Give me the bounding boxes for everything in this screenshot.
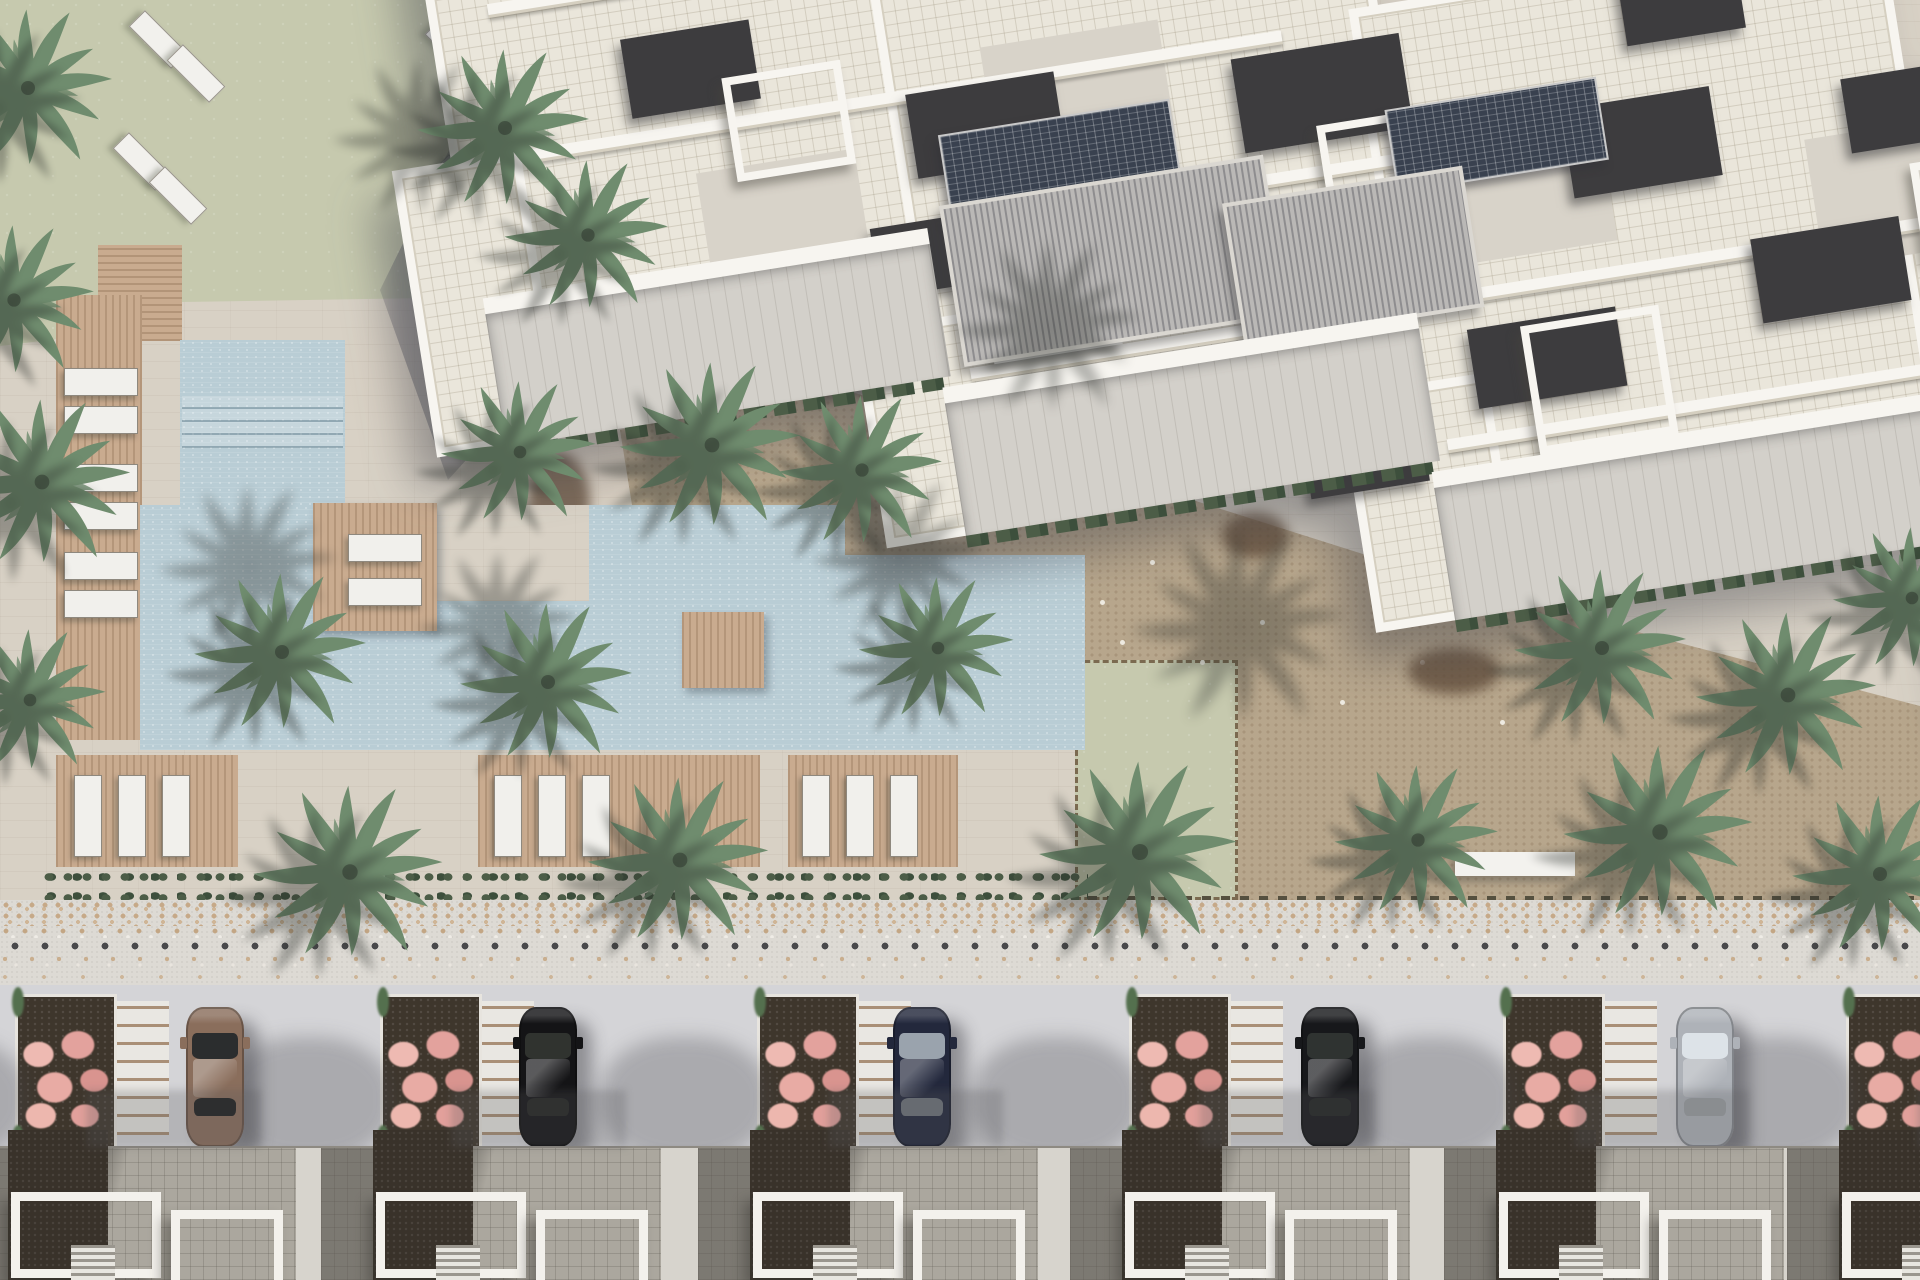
- palm-shadow: [428, 612, 608, 792]
- cast-shadow: [1574, 1090, 1749, 1148]
- car-mirror: [576, 1037, 583, 1049]
- cypress-tree: [754, 987, 766, 1017]
- street-planter: [1849, 997, 1920, 1148]
- palm-shadow: [0, 409, 105, 598]
- townhouse-stairs: [1185, 1245, 1229, 1280]
- cast-shadow: [1200, 1090, 1375, 1148]
- palm-shadow: [1304, 774, 1475, 945]
- cast-shadow: [828, 1090, 1003, 1148]
- courtyard-parapet-frame: [721, 60, 856, 182]
- cypress-tree: [12, 987, 24, 1017]
- townhouse-stairs: [1902, 1245, 1920, 1280]
- palm-tree: [192, 562, 372, 742]
- sun-lounger: [348, 534, 422, 562]
- palm-shadow: [951, 228, 1149, 432]
- car-mirror: [950, 1037, 957, 1049]
- palm-tree: [1037, 749, 1244, 956]
- car-mirror: [887, 1037, 894, 1049]
- courtyard-parapet-frame: [1520, 305, 1679, 455]
- palm-shadow: [218, 795, 416, 993]
- car-mirror: [513, 1037, 520, 1049]
- palm-tree: [0, 0, 118, 178]
- townhouse-stairs: [71, 1245, 115, 1280]
- palm-shadow: [0, 18, 88, 198]
- car-windshield: [525, 1033, 571, 1059]
- car-windshield: [1307, 1033, 1353, 1059]
- car-windshield: [192, 1033, 238, 1059]
- palm-shadow: [554, 787, 743, 976]
- car-mirror: [1295, 1037, 1302, 1049]
- palm-tree: [458, 592, 638, 772]
- palm-shadow: [474, 169, 645, 340]
- car-mirror: [1670, 1037, 1677, 1049]
- townhouse-stairs: [1559, 1245, 1603, 1280]
- palm-tree: [439, 371, 601, 533]
- palm-shadow: [1760, 804, 1920, 984]
- palm-shadow: [162, 582, 342, 762]
- sun-lounger: [162, 775, 190, 857]
- townhouse-stairs: [813, 1245, 857, 1280]
- palm-shadow: [0, 234, 71, 405]
- car-windshield: [1682, 1033, 1728, 1059]
- car-mirror: [243, 1037, 250, 1049]
- palm-shadow: [412, 389, 574, 551]
- palm-shadow: [830, 585, 992, 747]
- palm-tree: [857, 567, 1019, 729]
- townhouse-unit: [0, 1148, 356, 1280]
- palm-tree: [777, 385, 948, 556]
- townhouse-stairs: [436, 1245, 480, 1280]
- car-mirror: [1358, 1037, 1365, 1049]
- palm-shadow: [586, 372, 775, 561]
- townhouse-unit: [698, 1148, 1098, 1280]
- car-windshield: [899, 1033, 945, 1059]
- palm-tree: [503, 150, 674, 321]
- cypress-tree: [1500, 987, 1512, 1017]
- palm-shadow: [1002, 772, 1209, 979]
- townhouse-unit: [1444, 1148, 1844, 1280]
- car-mirror: [180, 1037, 187, 1049]
- cypress-tree: [1126, 987, 1138, 1017]
- pink-blossom-tree: [1837, 1019, 1920, 1137]
- pergola-frame: [536, 1210, 648, 1280]
- palm-tree: [586, 766, 775, 955]
- palm-shadow: [748, 404, 919, 575]
- palm-tree: [1333, 755, 1504, 926]
- palm-tree: [0, 388, 137, 577]
- palm-shadow: [1128, 514, 1353, 745]
- sun-lounger: [118, 775, 146, 857]
- palm-tree: [0, 619, 111, 781]
- palm-shadow: [1482, 578, 1662, 758]
- car-mirror: [1733, 1037, 1740, 1049]
- cypress-tree: [1843, 987, 1855, 1017]
- pergola-frame: [1285, 1210, 1397, 1280]
- cast-shadow: [86, 1090, 261, 1148]
- townhouse-unit: [321, 1148, 721, 1280]
- pergola-frame: [171, 1210, 283, 1280]
- cast-shadow: [451, 1090, 626, 1148]
- site-plan-render: [0, 0, 1920, 1280]
- palm-tree: [1790, 784, 1920, 964]
- townhouse-unit: [1070, 1148, 1470, 1280]
- pergola-frame: [1659, 1210, 1771, 1280]
- palm-shadow: [1804, 535, 1920, 697]
- palm-tree: [251, 773, 449, 971]
- palm-tree: [1831, 517, 1920, 679]
- palm-shadow: [0, 637, 84, 799]
- palm-tree: [0, 215, 100, 386]
- townhouse-unit: [1787, 1148, 1920, 1280]
- pergola-frame: [913, 1210, 1025, 1280]
- pool-steps: [182, 396, 343, 448]
